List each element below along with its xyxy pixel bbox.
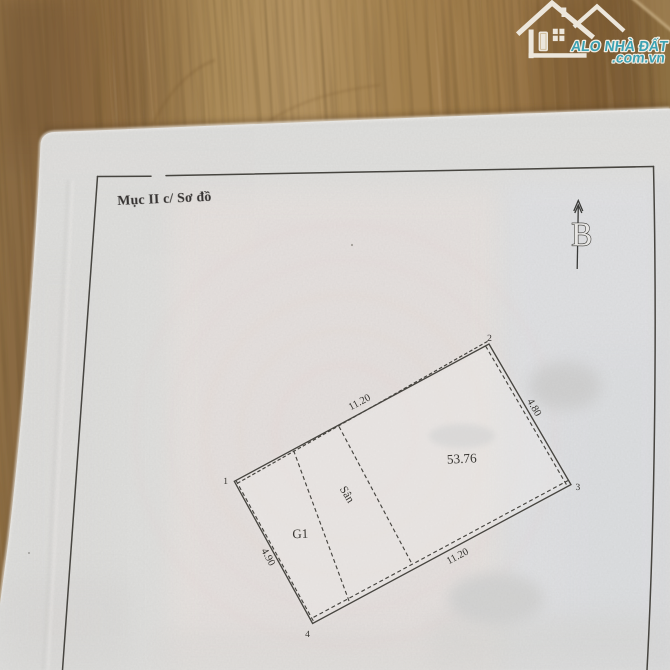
svg-text:.com.vn: .com.vn xyxy=(611,51,666,67)
svg-text:1: 1 xyxy=(223,477,228,487)
svg-text:B: B xyxy=(571,217,592,254)
svg-text:2: 2 xyxy=(487,334,492,344)
svg-text:3: 3 xyxy=(576,483,581,493)
svg-text:53.76: 53.76 xyxy=(447,450,478,467)
svg-text:G1: G1 xyxy=(292,526,308,542)
svg-text:4: 4 xyxy=(305,630,310,640)
